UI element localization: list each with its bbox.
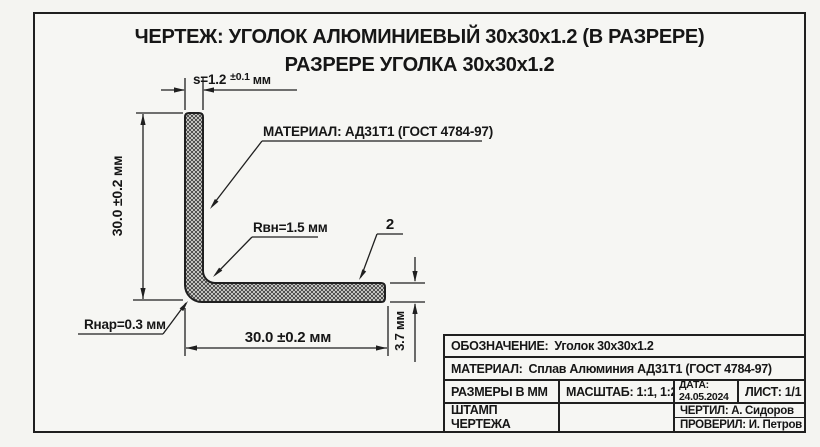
inner-radius-leader bbox=[215, 237, 318, 275]
material-callout-label: МАТЕРИАЛ: АД31Т1 (ГОСТ 4784-97) bbox=[263, 124, 493, 139]
title-block-units: РАЗМЕРЫ В ММ bbox=[445, 381, 560, 404]
material-leader bbox=[212, 141, 482, 206]
dim-wall-thickness bbox=[161, 78, 297, 110]
title-block: ОБОЗНАЧЕНИЕ: Уголок 30x30x1.2 МАТЕРИАЛ: … bbox=[443, 334, 806, 433]
designation-value: Уголок 30x30x1.2 bbox=[554, 339, 653, 353]
arrowhead bbox=[359, 269, 366, 280]
arrowhead bbox=[412, 271, 417, 282]
arrowhead bbox=[140, 114, 145, 125]
position-number-label: 2 bbox=[386, 216, 394, 233]
title-block-sheet: ЛИСТ: 1/1 bbox=[739, 381, 804, 404]
title-block-date: ДАТА: 24.05.2024 bbox=[675, 381, 739, 404]
material-label: МАТЕРИАЛ: bbox=[451, 362, 523, 376]
title-block-signatures: ЧЕРТИЛ: А. Сидоров ПРОВЕРИЛ: И. Петров bbox=[675, 404, 804, 431]
date-label: ДАТА: bbox=[679, 381, 709, 392]
title-block-designation: ОБОЗНАЧЕНИЕ: Уголок 30x30x1.2 bbox=[445, 336, 804, 358]
title-block-material: МАТЕРИАЛ: Сплав Алюминия АД31Т1 (ГОСТ 47… bbox=[445, 358, 804, 381]
stamp-line1: ШТАМП bbox=[451, 404, 497, 418]
title-block-scale: МАСШТАБ: 1:1, 1:2 bbox=[560, 381, 675, 404]
arrowhead bbox=[203, 87, 214, 92]
arrowhead bbox=[186, 345, 197, 350]
position-leader bbox=[361, 234, 403, 277]
date-value: 24.05.2024 bbox=[679, 392, 729, 403]
checked-by: ПРОВЕРИЛ: И. Петров bbox=[675, 418, 804, 431]
dim-width-label: 30.0 ±0.2 мм bbox=[245, 329, 332, 346]
inner-radius-label: Rвн=1.5 мм bbox=[253, 220, 328, 235]
arrowhead bbox=[376, 345, 387, 350]
material-value: Сплав Алюминия АД31Т1 (ГОСТ 4784-97) bbox=[529, 362, 772, 376]
dim-wall-thickness-label: s=1.2±0.1мм bbox=[193, 71, 271, 87]
arrowhead bbox=[140, 288, 145, 299]
dim-height-label: 30.0 ±0.2 мм bbox=[109, 156, 125, 237]
arrowhead bbox=[412, 303, 417, 314]
designation-label: ОБОЗНАЧЕНИЕ: bbox=[451, 339, 548, 353]
arrowhead bbox=[210, 199, 219, 209]
drawn-by: ЧЕРТИЛ: А. Сидоров bbox=[675, 404, 804, 418]
dim-height bbox=[133, 113, 183, 300]
arrowhead bbox=[174, 87, 185, 92]
dim-leg-thickness-label: 3.7 мм bbox=[392, 311, 407, 351]
title-block-stamp: ШТАМП ЧЕРТЕЖА bbox=[445, 404, 560, 431]
title-block-empty-cell bbox=[560, 404, 675, 431]
outer-radius-label: Rнар=0.3 мм bbox=[84, 317, 166, 332]
stamp-line2: ЧЕРТЕЖА bbox=[451, 418, 511, 432]
